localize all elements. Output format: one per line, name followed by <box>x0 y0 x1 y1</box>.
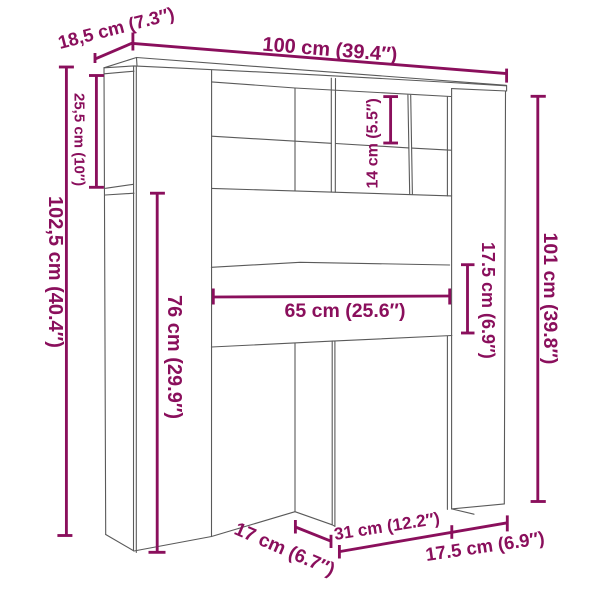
svg-text:25,5 cm (10″): 25,5 cm (10″) <box>71 93 88 186</box>
svg-text:76 cm (29.9″): 76 cm (29.9″) <box>163 295 185 419</box>
svg-text:65 cm (25.6″): 65 cm (25.6″) <box>285 300 406 322</box>
svg-text:101 cm (39.8″): 101 cm (39.8″) <box>539 233 561 365</box>
svg-text:31 cm (12.2″): 31 cm (12.2″) <box>333 508 441 544</box>
svg-text:102,5 cm (40.4″): 102,5 cm (40.4″) <box>44 196 66 348</box>
svg-text:17.5 cm (6.9″): 17.5 cm (6.9″) <box>478 242 498 359</box>
svg-text:14 cm (5.5″): 14 cm (5.5″) <box>365 98 382 188</box>
svg-text:17 cm (6.7″): 17 cm (6.7″) <box>231 519 338 581</box>
svg-text:100 cm (39.4″): 100 cm (39.4″) <box>262 34 399 67</box>
